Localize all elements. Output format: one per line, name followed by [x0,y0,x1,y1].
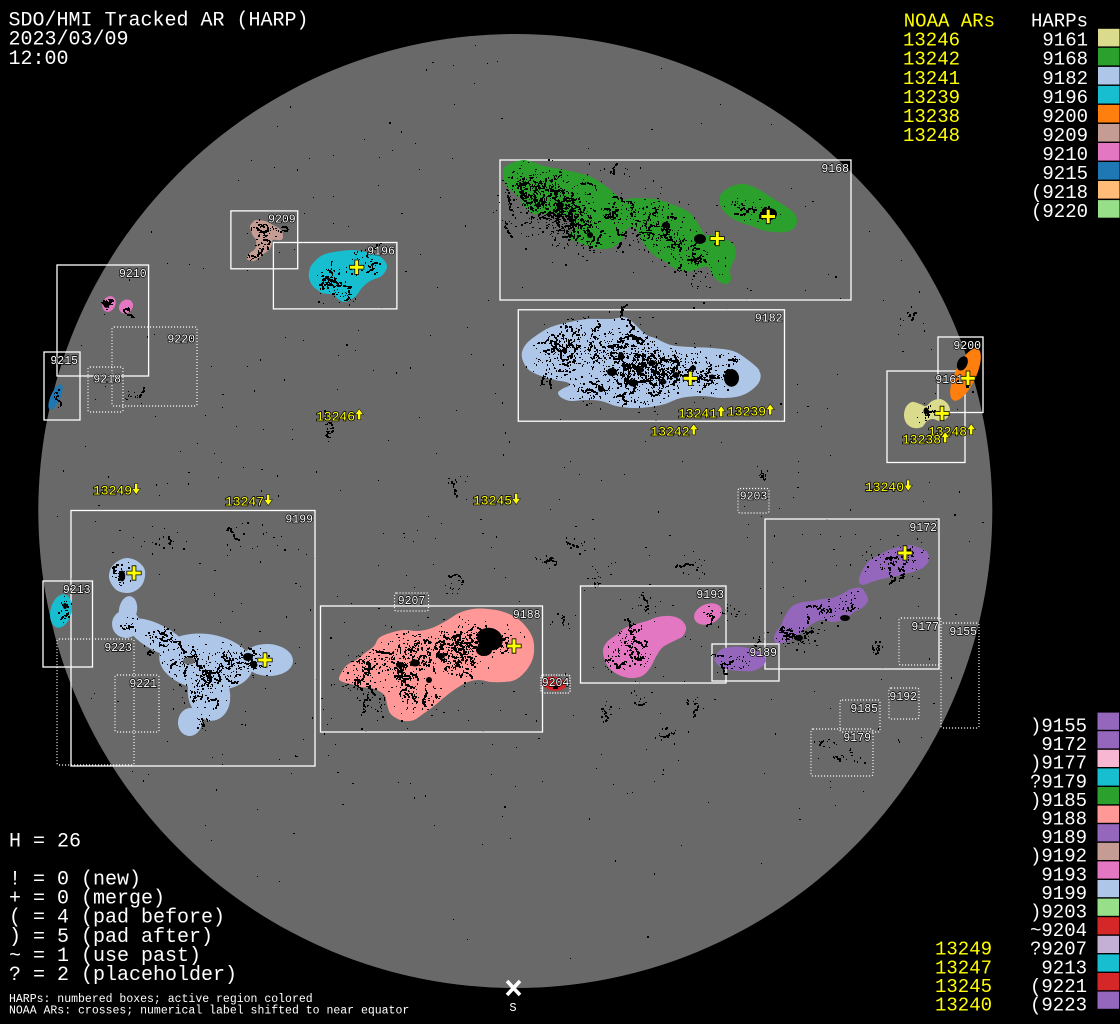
svg-text:9210: 9210 [119,268,147,281]
svg-text:13246: 13246 [316,410,355,425]
svg-text:9200: 9200 [953,340,981,353]
svg-text:9189: 9189 [749,647,777,660]
svg-text:? = 2 (placeholder): ? = 2 (placeholder) [9,964,237,987]
svg-text:9199: 9199 [285,513,313,526]
svg-text:9188: 9188 [513,609,541,622]
svg-text:9155: 9155 [949,626,977,639]
svg-text:9177: 9177 [911,621,939,634]
svg-text:9182: 9182 [755,313,783,326]
svg-text:H = 26: H = 26 [9,831,81,854]
svg-text:9223: 9223 [104,642,132,655]
svg-text:9221: 9221 [129,678,157,691]
svg-text:13240: 13240 [865,480,904,495]
svg-text:9192: 9192 [889,691,917,704]
svg-text:9203: 9203 [740,491,768,504]
svg-text:9218: 9218 [93,374,121,387]
svg-text:9207: 9207 [398,595,426,608]
svg-text:13238: 13238 [902,433,941,448]
svg-text:9172: 9172 [909,522,937,535]
svg-text:9168: 9168 [821,163,849,176]
svg-text:(9220: (9220 [1031,201,1088,223]
svg-text:12:00: 12:00 [9,48,69,71]
svg-text:9196: 9196 [367,245,395,258]
svg-text:13242: 13242 [651,425,690,440]
svg-text:9204: 9204 [542,677,570,690]
svg-text:(9223: (9223 [1030,995,1087,1017]
svg-text:13239: 13239 [727,405,766,420]
svg-text:13245: 13245 [473,494,512,509]
svg-text:13240: 13240 [935,995,992,1017]
svg-text:13241: 13241 [678,407,717,422]
svg-text:S: S [509,1001,516,1015]
svg-text:9215: 9215 [50,355,78,368]
svg-text:13249: 13249 [93,484,132,499]
svg-text:9220: 9220 [167,334,195,347]
svg-text:9213: 9213 [63,584,91,597]
svg-text:13247: 13247 [225,495,264,510]
svg-text:13248: 13248 [903,125,960,147]
svg-text:9161: 9161 [935,374,963,387]
svg-text:9179: 9179 [843,732,871,745]
svg-text:9209: 9209 [268,214,296,227]
svg-text:9185: 9185 [850,703,878,716]
svg-text:NOAA ARs: crosses; numerical l: NOAA ARs: crosses; numerical label shift… [9,1005,409,1018]
svg-text:9193: 9193 [696,589,724,602]
